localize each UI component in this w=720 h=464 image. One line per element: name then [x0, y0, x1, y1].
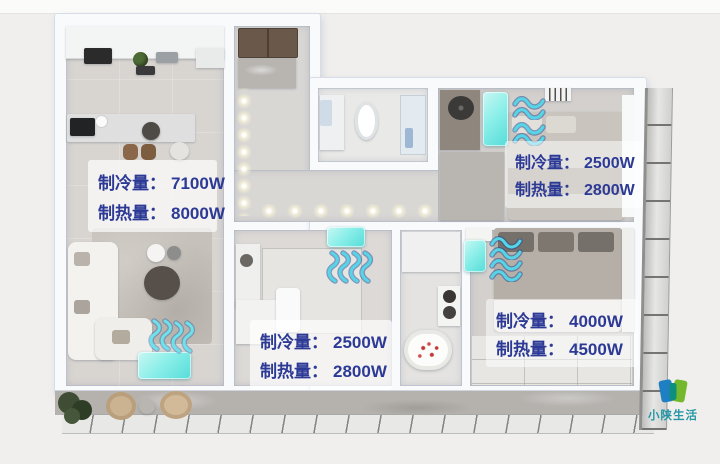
island-plate [96, 116, 107, 127]
ceiling-fan [448, 96, 474, 120]
sofa-pillow [74, 300, 90, 314]
entry-cabinet [238, 58, 296, 88]
brand-logo-icon [656, 376, 690, 406]
ac-indoor-unit-master [464, 240, 486, 272]
airflow-wave-icon [512, 96, 546, 120]
balcony-plant [64, 408, 80, 424]
capacity-label-middle-room: 制冷量：2500W 制热量：2800W [250, 320, 392, 390]
bedroom2-dresser [440, 152, 504, 220]
vessel-sink [443, 306, 456, 319]
capacity-label-bedroom2: 制冷量：2500W 制热量：2800W [505, 141, 643, 208]
pillow [538, 232, 574, 252]
pillow [578, 232, 614, 252]
vanity-mirror [240, 254, 253, 267]
airflow-wave-icon [346, 250, 376, 284]
shower-area [400, 95, 426, 155]
cooling-capacity-text: 制冷量：4000W [496, 307, 632, 332]
ac-indoor-unit-living [138, 352, 191, 379]
heating-capacity-text: 制热量：2800W [515, 176, 637, 200]
cooling-capacity-text: 制冷量：2500W [515, 149, 637, 173]
bath-towel [405, 128, 413, 148]
side-table [147, 244, 165, 262]
airflow-wave-icon [489, 236, 523, 260]
wardrobe-divider [267, 28, 269, 58]
cooling-capacity-text: 制冷量：7100W [98, 169, 211, 194]
island-sink [70, 118, 95, 136]
heating-capacity-text: 制热量：4500W [496, 335, 632, 360]
cooktop [136, 66, 155, 75]
balcony-chair [160, 391, 192, 419]
balcony-table [139, 399, 155, 414]
brand-watermark: 小陕生活 [648, 376, 708, 422]
ac-indoor-unit-middle [327, 227, 365, 247]
ceiling-vent [545, 88, 571, 101]
range-hood [84, 48, 112, 64]
top-band [0, 0, 720, 14]
sofa-pillow [74, 252, 90, 266]
kitchen-sink [156, 52, 178, 63]
round-dining-table [142, 122, 160, 140]
toilet [355, 102, 378, 140]
kitchen-plant [133, 52, 148, 67]
bar-stool [123, 144, 138, 160]
bathtub-with-petals [404, 330, 452, 370]
dining-chair [170, 142, 189, 160]
heating-capacity-text: 制热量：8000W [98, 199, 211, 224]
bar-stool [141, 144, 156, 160]
coffee-table [144, 266, 180, 300]
side-table [167, 246, 181, 260]
pillow [546, 116, 576, 133]
bathroom1-cabinet [320, 100, 332, 126]
sofa-pillow [112, 330, 130, 344]
airflow-wave-icon [489, 258, 523, 282]
cooling-capacity-text: 制冷量：2500W [260, 328, 386, 353]
hallway-floor-lights [237, 76, 251, 216]
capacity-label-living: 制冷量：7100W 制热量：8000W [88, 160, 217, 232]
bathroom2-closet [402, 232, 460, 272]
balcony-glass-railing [62, 414, 654, 434]
brand-name: 小陕生活 [648, 407, 698, 423]
balcony-chair [106, 392, 136, 420]
kitchen-counter-right [196, 48, 224, 68]
airflow-wave-icon [168, 320, 198, 354]
vessel-sink [443, 290, 456, 303]
capacity-label-master: 制冷量：4000W 制热量：4500W [486, 299, 638, 367]
floorplan-image: 制冷量：7100W 制热量：8000W 制冷量：2500W 制热量：2800W … [0, 0, 720, 464]
heating-capacity-text: 制热量：2800W [260, 357, 386, 382]
ac-indoor-unit-bedroom2 [483, 92, 508, 146]
corridor-floor-lights [256, 204, 452, 218]
